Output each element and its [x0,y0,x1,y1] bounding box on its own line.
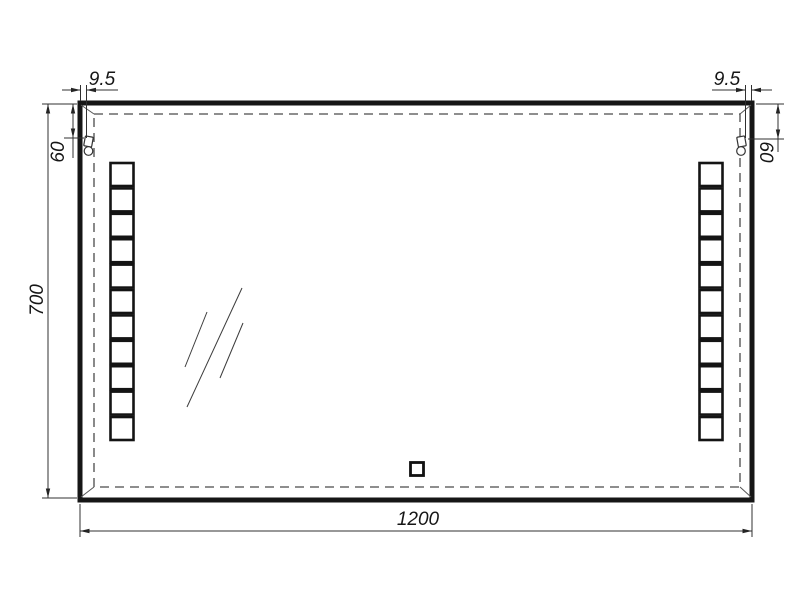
corner-bevel-line [740,487,751,497]
led-square [111,341,134,364]
led-square [700,290,723,313]
dim-height-label: 700 [27,284,48,316]
glass-reflection-mark [187,288,242,407]
led-column-left [111,163,134,440]
touch-sensor [411,463,424,476]
led-square [111,239,134,262]
led-square [700,315,723,338]
arrowhead [46,104,50,114]
mounting-hook-right [737,136,747,155]
led-square [700,417,723,440]
dim-drop-left-label: 60 [48,141,69,163]
corner-bevel-line [81,487,94,497]
led-square [111,366,134,389]
arrowhead [743,529,753,533]
arrowhead [752,88,762,92]
corner-bevel-line [81,105,94,114]
dim-drop-right-label: 60 [755,141,776,163]
led-square [111,290,134,313]
arrowhead [71,129,75,139]
mounting-hook-left [84,136,94,155]
mirror-outline [80,103,752,500]
hook-ring [737,147,746,156]
led-square [111,214,134,237]
technical-drawing: 700 1200 9.5 9.5 60 [0,0,800,600]
led-square [111,392,134,415]
led-square [700,188,723,211]
dim-width-label: 1200 [397,509,440,530]
hook-tab [84,136,94,147]
drawing-canvas: 700 1200 9.5 9.5 60 [0,0,800,600]
dim-offset-right-label: 9.5 [714,69,741,90]
arrowhead [46,489,50,499]
glass-reflection-mark [220,323,243,378]
arrowhead [776,130,780,140]
glass-reflection-marks [185,288,243,407]
led-square [700,341,723,364]
arrowhead [776,104,780,114]
led-square [111,315,134,338]
hook-ring [84,147,93,156]
led-square [700,214,723,237]
glass-reflection-mark [185,312,207,367]
led-column-right [700,163,723,440]
led-square [111,163,134,186]
led-square [700,163,723,186]
mirror-body [80,103,752,500]
dim-width: 1200 [80,504,752,537]
led-square [700,239,723,262]
led-square [111,417,134,440]
hook-tab [737,136,747,147]
dim-offset-left-label: 9.5 [89,69,116,90]
led-square [700,265,723,288]
led-square [111,265,134,288]
led-square [700,392,723,415]
led-square [111,188,134,211]
arrowhead [71,88,81,92]
arrowhead [80,529,90,533]
arrowhead [71,104,75,114]
backlight-dashed-outline [94,114,740,487]
led-square [700,366,723,389]
